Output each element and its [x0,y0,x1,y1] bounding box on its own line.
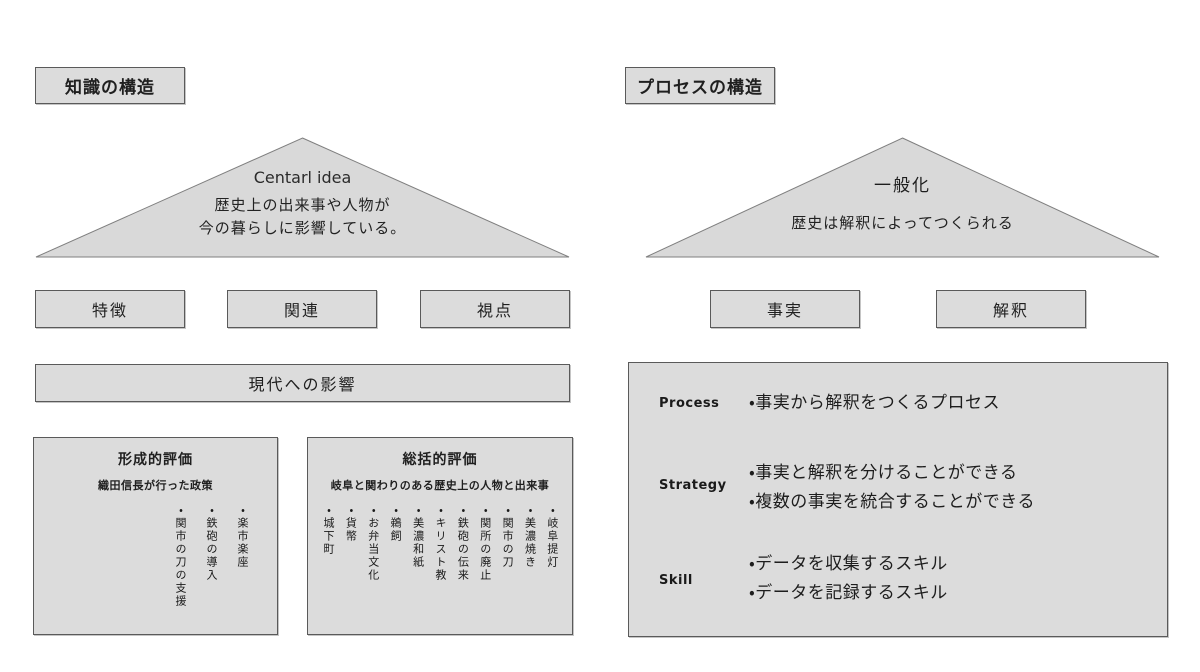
process-row-label: Process [659,396,719,411]
interpretation-box: 解釈 [936,290,1086,328]
fact-box: 事実 [710,290,860,328]
modern-impact-box: 現代への影響 [35,364,570,402]
list-item: ・岐阜提灯 [545,504,559,569]
modern-impact-box-label: 現代への影響 [248,371,356,395]
process-detail-box: Process ・事実から解釈をつくるプロセス Strategy ・事実と解釈を… [628,362,1168,637]
list-item: ・関市の刀 [500,504,514,569]
list-item: ・美濃焼き [523,504,537,569]
process-row-bullets: ・事実から解釈をつくるプロセス [749,389,1000,418]
formative-evaluation-box: 形成的評価 織田信長が行った政策 ・楽市楽座 ・鉄砲の導入 ・関市の刀の支援 [33,437,278,635]
list-item: ・お弁当文化 [366,504,380,582]
knowledge-structure-title-label: 知識の構造 [65,73,155,98]
central-idea-heading: Centarl idea [35,168,570,187]
bullet-line: ・データを記録するスキル [749,579,948,608]
central-idea-line2: 今の暮らしに影響している。 [35,217,570,240]
summative-evaluation-box: 総括的評価 岐阜と関わりのある歴史上の人物と出来事 ・岐阜提灯 ・美濃焼き ・関… [307,437,573,635]
formative-evaluation-title: 形成的評価 [34,449,277,469]
process-structure-title-label: プロセスの構造 [637,73,763,98]
relations-box: 関連 [227,290,377,328]
features-box-label: 特徴 [92,297,128,321]
list-item: ・関市の刀の支援 [173,504,187,608]
summative-evaluation-title: 総括的評価 [308,449,572,469]
bullet-line: ・事実と解釈を分けることができる [749,459,1035,488]
generalization-line1: 歴史は解釈によってつくられる [645,212,1160,235]
interpretation-box-label: 解釈 [993,297,1029,321]
bullet-line: ・複数の事実を統合することができる [749,488,1035,517]
process-triangle-text: 一般化 歴史は解釈によってつくられる [645,171,1160,235]
summative-evaluation-subtitle: 岐阜と関わりのある歴史上の人物と出来事 [308,477,572,493]
list-item: ・楽市楽座 [235,504,249,569]
bullet-line: ・データを収集するスキル [749,550,948,579]
list-item: ・美濃和紙 [411,504,425,569]
list-item: ・鉄砲の伝来 [455,504,469,582]
list-item: ・貨幣 [343,504,357,543]
viewpoint-box-label: 視点 [477,297,513,321]
summative-item-list: ・岐阜提灯 ・美濃焼き ・関市の刀 ・関所の廃止 ・鉄砲の伝来 ・キリスト教 ・… [308,504,572,626]
strategy-row-bullets: ・事実と解釈を分けることができる ・複数の事実を統合することができる [749,459,1035,517]
generalization-heading: 一般化 [645,171,1160,196]
knowledge-structure-title: 知識の構造 [35,67,185,104]
list-item: ・鉄砲の導入 [204,504,218,582]
formative-evaluation-subtitle: 織田信長が行った政策 [34,477,277,493]
list-item: ・鵜飼 [388,504,402,543]
list-item: ・キリスト教 [433,504,447,582]
strategy-row-label: Strategy [659,478,727,493]
central-idea-line1: 歴史上の出来事や人物が [35,194,570,217]
relations-box-label: 関連 [284,297,320,321]
diagram-canvas: 知識の構造 Centarl idea 歴史上の出来事や人物が 今の暮らしに影響し… [0,0,1200,672]
knowledge-triangle-text: Centarl idea 歴史上の出来事や人物が 今の暮らしに影響している。 [35,168,570,240]
fact-box-label: 事実 [767,297,803,321]
viewpoint-box: 視点 [420,290,570,328]
list-item: ・関所の廃止 [478,504,492,582]
skill-row-label: Skill [659,573,693,588]
skill-row-bullets: ・データを収集するスキル ・データを記録するスキル [749,550,948,608]
features-box: 特徴 [35,290,185,328]
process-structure-title: プロセスの構造 [625,67,775,104]
bullet-line: ・事実から解釈をつくるプロセス [749,389,1000,418]
list-item: ・城下町 [321,504,335,556]
formative-item-list: ・楽市楽座 ・鉄砲の導入 ・関市の刀の支援 [34,504,277,626]
